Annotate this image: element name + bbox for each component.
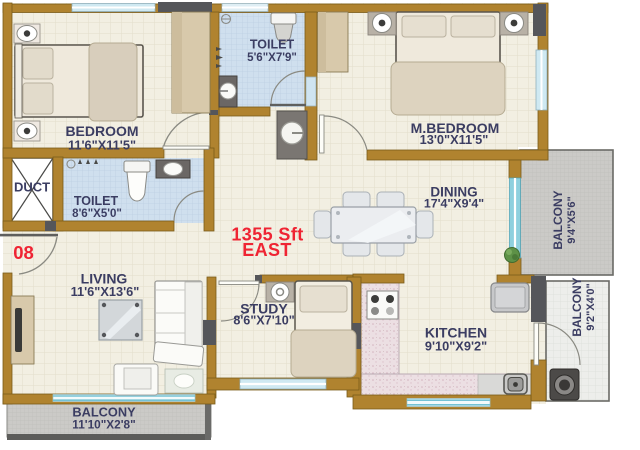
svg-text:17'4"X9'4": 17'4"X9'4" (424, 197, 484, 211)
svg-text:08: 08 (13, 242, 34, 263)
svg-text:11'6"X11'5": 11'6"X11'5" (68, 138, 136, 153)
svg-text:13'0"X11'5": 13'0"X11'5" (420, 132, 489, 147)
svg-text:DUCT: DUCT (14, 180, 50, 195)
svg-text:EAST: EAST (242, 240, 292, 260)
svg-text:TOILET: TOILET (250, 38, 295, 52)
svg-text:9'2"X4'0": 9'2"X4'0" (585, 283, 597, 330)
svg-text:BALCONY: BALCONY (551, 190, 565, 249)
svg-text:TOILET: TOILET (74, 194, 119, 208)
svg-text:11'6"X13'6": 11'6"X13'6" (71, 284, 140, 299)
svg-text:8'6"X5'0": 8'6"X5'0" (72, 208, 122, 220)
svg-text:11'10"X2'8": 11'10"X2'8" (72, 418, 135, 432)
svg-text:BALCONY: BALCONY (570, 277, 584, 336)
svg-text:9'10"X9'2": 9'10"X9'2" (425, 339, 487, 354)
svg-text:5'6"X7'9": 5'6"X7'9" (247, 52, 297, 64)
svg-text:9'4"X5'6": 9'4"X5'6" (566, 196, 578, 243)
svg-text:8'6"X7'10": 8'6"X7'10" (233, 314, 294, 328)
